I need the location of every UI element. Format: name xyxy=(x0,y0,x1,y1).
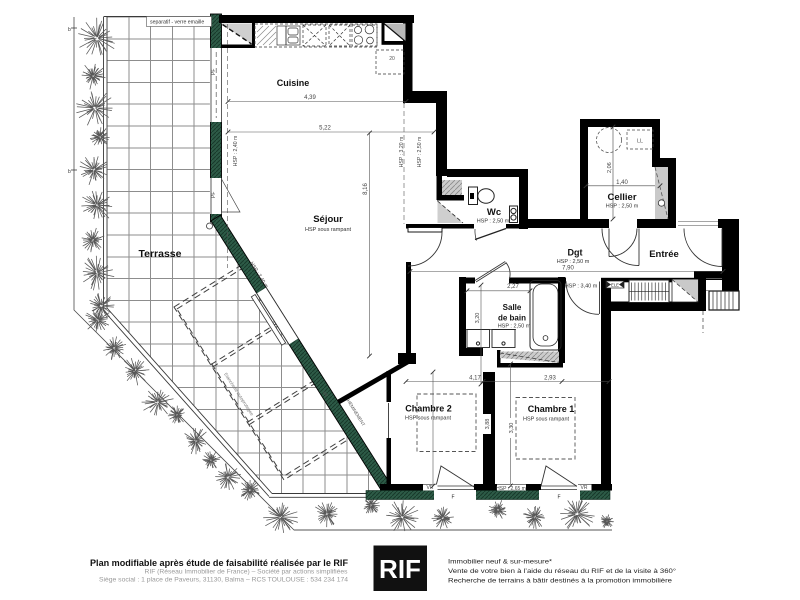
svg-text:de bain: de bain xyxy=(498,314,526,323)
svg-text:HSP : 2,50 m: HSP : 2,50 m xyxy=(498,324,531,330)
svg-text:separatif - verre emaille: separatif - verre emaille xyxy=(150,20,204,26)
svg-text:HSP : 2,50 m: HSP : 2,50 m xyxy=(557,259,590,265)
svg-text:RIF (Réseau Immobilier de Fran: RIF (Réseau Immobilier de France) – Soci… xyxy=(145,569,348,576)
svg-text:HSP : 2,50 m: HSP : 2,50 m xyxy=(606,204,639,210)
svg-text:Immobilier neuf & sur-mesure*: Immobilier neuf & sur-mesure* xyxy=(448,559,553,566)
svg-text:LL: LL xyxy=(637,139,643,145)
svg-text:3,20: 3,20 xyxy=(475,313,481,324)
svg-text:Salle: Salle xyxy=(503,303,522,312)
svg-text:2,06: 2,06 xyxy=(607,162,613,173)
svg-text:Dgt: Dgt xyxy=(568,248,583,258)
svg-text:3,88: 3,88 xyxy=(485,419,491,430)
svg-text:Recherche de terrains à bâtir: Recherche de terrains à bâtir destinés à… xyxy=(448,578,672,585)
svg-text:Séjour: Séjour xyxy=(313,214,343,225)
svg-text:Entrée: Entrée xyxy=(649,249,679,260)
svg-text:RIF: RIF xyxy=(379,554,421,584)
svg-text:Chambre 1: Chambre 1 xyxy=(528,404,575,414)
svg-text:HSP : 2,65 m: HSP : 2,65 m xyxy=(496,486,526,492)
svg-text:20: 20 xyxy=(389,56,395,62)
svg-text:5,22: 5,22 xyxy=(319,126,331,132)
svg-text:4,17: 4,17 xyxy=(469,376,481,382)
svg-text:1,40: 1,40 xyxy=(616,180,628,186)
svg-text:HSP : 2,50 m: HSP : 2,50 m xyxy=(417,137,423,168)
svg-text:3,30: 3,30 xyxy=(509,423,515,434)
svg-text:b: b xyxy=(68,27,71,33)
svg-text:PF: PF xyxy=(211,69,217,75)
svg-text:F: F xyxy=(557,495,560,501)
svg-text:HSP : 2,50 m: HSP : 2,50 m xyxy=(477,219,510,225)
svg-text:Cellier: Cellier xyxy=(607,192,636,203)
svg-text:PF: PF xyxy=(211,192,217,198)
svg-text:Cuisine: Cuisine xyxy=(277,78,310,88)
svg-text:7,90: 7,90 xyxy=(562,266,574,272)
svg-text:b: b xyxy=(68,169,71,175)
svg-text:Chambre 2: Chambre 2 xyxy=(405,404,452,414)
svg-text:Siège social : 1 place de Pave: Siège social : 1 place de Paveurs, 31130… xyxy=(99,577,349,584)
svg-text:HSP sous rampant: HSP sous rampant xyxy=(523,417,570,423)
svg-text:Vente de votre bien à l’aide d: Vente de votre bien à l’aide du réseau d… xyxy=(448,567,676,575)
svg-text:Terrasse: Terrasse xyxy=(138,248,181,260)
svg-text:HSP : 3,40 m: HSP : 3,40 m xyxy=(565,284,598,290)
svg-text:HSP : 3,20 m: HSP : 3,20 m xyxy=(399,137,405,168)
svg-text:4,39: 4,39 xyxy=(304,95,316,101)
svg-text:ELE: ELE xyxy=(611,282,619,287)
svg-text:HSP : 2,40 m: HSP : 2,40 m xyxy=(233,136,239,167)
svg-text:2,93: 2,93 xyxy=(544,376,556,382)
svg-text:8,16: 8,16 xyxy=(363,183,369,195)
svg-text:Wc: Wc xyxy=(487,207,501,218)
svg-text:Plan modifiable après étude de: Plan modifiable après étude de faisabili… xyxy=(90,558,348,569)
svg-text:VR: VR xyxy=(581,485,588,491)
svg-text:HSP sous rampant: HSP sous rampant xyxy=(405,416,452,422)
svg-text:2,27: 2,27 xyxy=(507,284,519,290)
svg-text:HSP sous rampant: HSP sous rampant xyxy=(305,227,352,233)
svg-text:F: F xyxy=(451,495,454,501)
